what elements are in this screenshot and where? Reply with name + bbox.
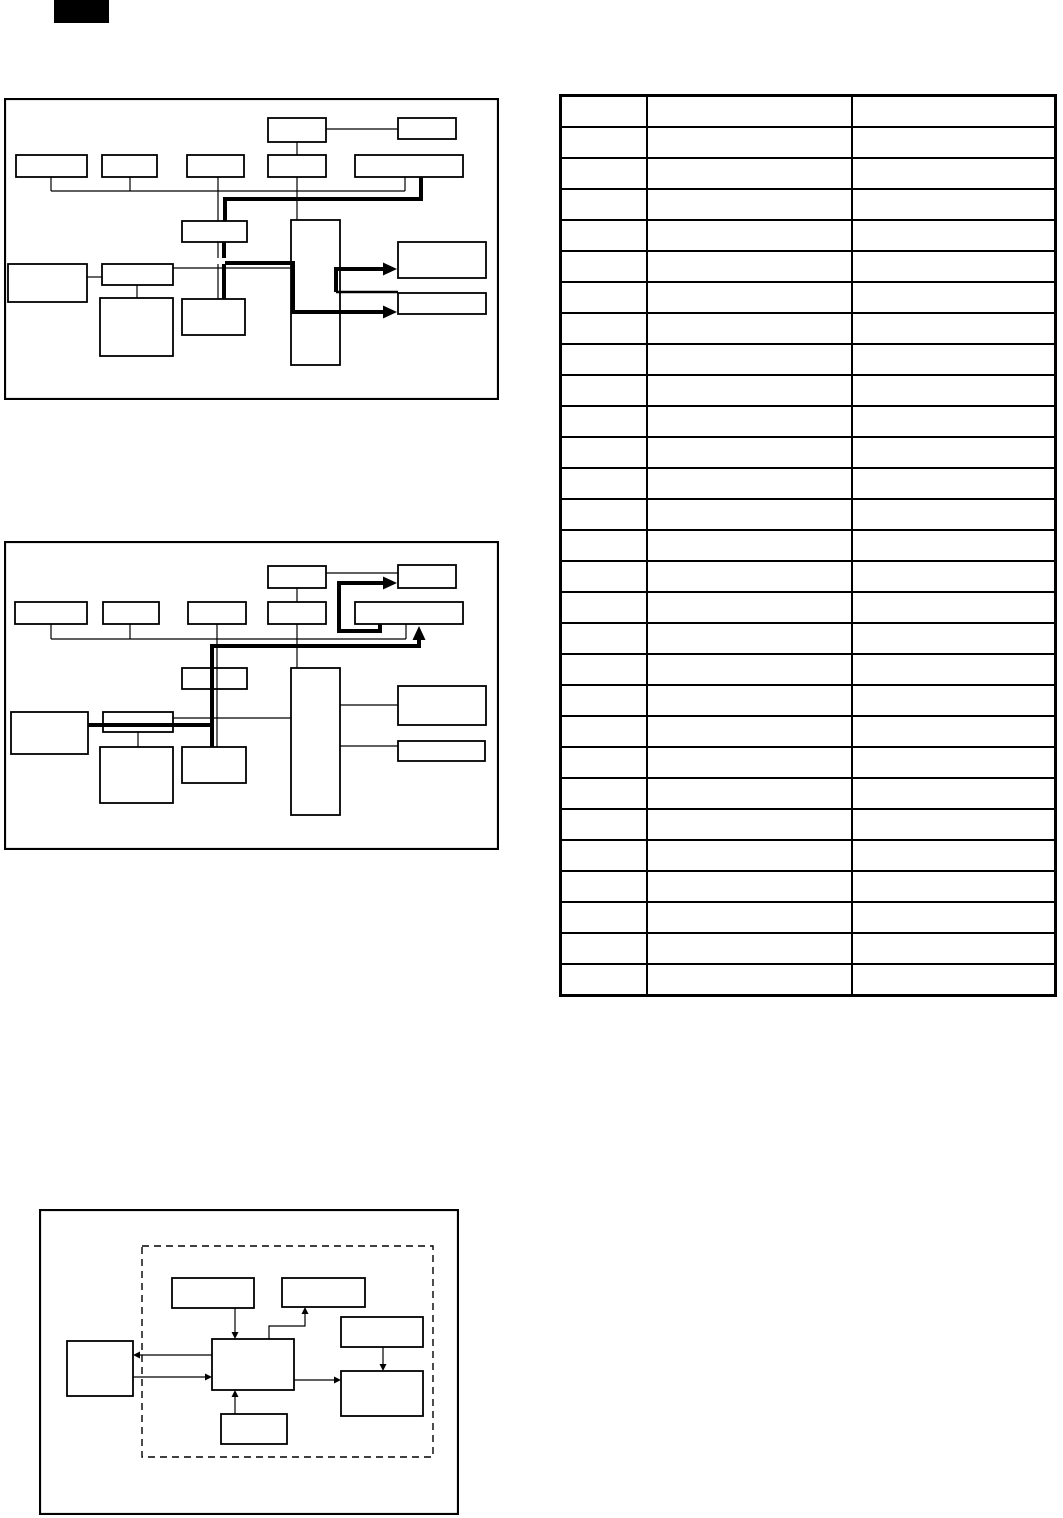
d3-arrow-left-to-center — [133, 1374, 212, 1381]
table-cell — [853, 97, 1054, 126]
table-cell — [648, 562, 853, 591]
block-diagram-3 — [39, 1209, 459, 1515]
table-cell — [648, 469, 853, 498]
table-cell — [648, 903, 853, 932]
d3-right-lower-box — [341, 1371, 423, 1416]
table-row — [562, 157, 1054, 188]
d3-top-right-box — [282, 1278, 365, 1307]
d1-output-arrow-upper — [336, 263, 398, 293]
d3-bottom-box — [221, 1414, 287, 1444]
d2-small-center-box — [182, 668, 247, 689]
table-row — [562, 343, 1054, 374]
table-cell — [853, 748, 1054, 777]
table-row — [562, 219, 1054, 250]
table-cell — [648, 872, 853, 901]
table-row — [562, 281, 1054, 312]
table-cell — [562, 748, 648, 777]
table-cell — [853, 903, 1054, 932]
d2-top-right-box — [398, 565, 456, 588]
table-row — [562, 188, 1054, 219]
d3-left-outside-box — [67, 1341, 133, 1396]
table-cell — [648, 314, 853, 343]
table-cell — [853, 531, 1054, 560]
d2-left-box — [11, 712, 88, 754]
table-cell — [562, 159, 648, 188]
d1-row-box-4 — [268, 155, 326, 177]
d1-tall-center-box — [291, 220, 340, 365]
d3-arrow-right-upper-to-lower — [380, 1347, 387, 1371]
table-row — [562, 901, 1054, 932]
table-cell — [853, 314, 1054, 343]
d1-mid-left-box — [102, 264, 173, 285]
table-cell — [648, 655, 853, 684]
d1-top-right-box — [398, 118, 456, 139]
table-row — [562, 591, 1054, 622]
table-cell — [853, 252, 1054, 281]
table-cell — [853, 407, 1054, 436]
table-row — [562, 405, 1054, 436]
block-diagram-1 — [4, 98, 499, 400]
table-cell — [648, 810, 853, 839]
table-cell — [562, 376, 648, 405]
table-row — [562, 963, 1054, 994]
table-cell — [853, 717, 1054, 746]
table-cell — [562, 128, 648, 157]
table-cell — [562, 624, 648, 653]
table-cell — [562, 934, 648, 963]
table-row — [562, 498, 1054, 529]
table-cell — [853, 934, 1054, 963]
d2-right-upper-box — [398, 686, 486, 725]
table-cell — [562, 779, 648, 808]
table-cell — [562, 283, 648, 312]
d1-right-upper-box — [398, 242, 486, 278]
table-cell — [648, 779, 853, 808]
table-cell — [853, 841, 1054, 870]
table-row — [562, 436, 1054, 467]
table-cell — [853, 872, 1054, 901]
table-cell — [562, 221, 648, 250]
d1-left-box — [8, 264, 87, 302]
table-cell — [562, 717, 648, 746]
table-cell — [648, 531, 853, 560]
table-cell — [648, 624, 853, 653]
d1-bottom-left-box — [100, 298, 173, 356]
table-cell — [562, 531, 648, 560]
d1-small-center-box — [182, 221, 247, 242]
table-cell — [853, 810, 1054, 839]
d3-top-left-box — [172, 1278, 254, 1308]
table-cell — [648, 97, 853, 126]
d2-bottom-mid-box — [182, 747, 246, 783]
d1-bottom-mid-box — [182, 299, 245, 335]
table-cell — [562, 469, 648, 498]
table-cell — [648, 500, 853, 529]
table-row — [562, 467, 1054, 498]
d3-arrow-bottom-to-center — [232, 1390, 239, 1414]
d2-mid-left-box — [103, 712, 173, 732]
d3-center-box — [212, 1339, 294, 1390]
page-corner-tab — [54, 0, 109, 23]
table-cell — [853, 345, 1054, 374]
table-row — [562, 97, 1054, 126]
table-cell — [853, 283, 1054, 312]
d3-arrow-center-to-left — [133, 1352, 212, 1359]
table-row — [562, 250, 1054, 281]
d1-top-box — [268, 118, 326, 142]
table-cell — [648, 221, 853, 250]
d3-arrow-center-to-top-right — [269, 1307, 309, 1339]
table-cell — [853, 190, 1054, 219]
table-cell — [562, 252, 648, 281]
table-cell — [853, 469, 1054, 498]
table-cell — [648, 190, 853, 219]
table-cell — [562, 500, 648, 529]
d2-row-box-4 — [268, 602, 326, 624]
table-cell — [853, 438, 1054, 467]
table-cell — [648, 934, 853, 963]
table-cell — [648, 159, 853, 188]
table-cell — [853, 593, 1054, 622]
table-row — [562, 932, 1054, 963]
table-cell — [648, 593, 853, 622]
d2-top-box — [268, 566, 326, 588]
table-cell — [853, 655, 1054, 684]
table-cell — [853, 376, 1054, 405]
table-row — [562, 374, 1054, 405]
table-cell — [648, 686, 853, 715]
table-cell — [562, 562, 648, 591]
table-cell — [648, 376, 853, 405]
table-cell — [853, 221, 1054, 250]
d3-right-upper-box — [341, 1317, 423, 1347]
table-cell — [562, 593, 648, 622]
d1-row-box-2 — [102, 155, 157, 177]
table-cell — [853, 624, 1054, 653]
table-cell — [853, 159, 1054, 188]
d1-right-lower-box — [398, 293, 486, 314]
table-row — [562, 808, 1054, 839]
table-row — [562, 777, 1054, 808]
table-cell — [562, 841, 648, 870]
table-cell — [648, 438, 853, 467]
table-cell — [562, 314, 648, 343]
table-row — [562, 312, 1054, 343]
table-cell — [648, 128, 853, 157]
table-cell — [648, 717, 853, 746]
table-cell — [562, 903, 648, 932]
table-row — [562, 126, 1054, 157]
d1-row-box-1 — [16, 155, 87, 177]
table-row — [562, 684, 1054, 715]
document-page — [0, 0, 1063, 1518]
block-diagram-2 — [4, 541, 499, 850]
d1-thick-path-bus-to-center — [225, 177, 421, 221]
table-cell — [648, 252, 853, 281]
table-row — [562, 622, 1054, 653]
table-cell — [648, 407, 853, 436]
d2-bottom-left-box — [100, 747, 173, 803]
table-cell — [562, 407, 648, 436]
d3-arrow-center-to-right-lower — [294, 1377, 341, 1384]
table-cell — [562, 345, 648, 374]
table-row — [562, 560, 1054, 591]
table-cell — [562, 965, 648, 994]
table-row — [562, 870, 1054, 901]
table-cell — [562, 190, 648, 219]
d1-row-box-3 — [187, 155, 244, 177]
table-cell — [853, 128, 1054, 157]
table-row — [562, 746, 1054, 777]
d2-row-box-3 — [188, 602, 246, 624]
d1-row-box-5 — [355, 155, 463, 177]
table-row — [562, 715, 1054, 746]
ic-table — [559, 94, 1057, 997]
table-cell — [648, 965, 853, 994]
table-cell — [562, 686, 648, 715]
table-cell — [562, 872, 648, 901]
d2-row-box-1 — [15, 602, 87, 624]
table-cell — [853, 500, 1054, 529]
table-cell — [562, 810, 648, 839]
table-cell — [853, 965, 1054, 994]
d2-right-lower-box — [398, 741, 485, 761]
table-cell — [562, 655, 648, 684]
d2-tall-center-box — [291, 668, 340, 815]
d3-arrow-top-to-center — [232, 1308, 239, 1339]
table-cell — [853, 686, 1054, 715]
d2-row-box-5 — [355, 602, 463, 624]
table-cell — [648, 345, 853, 374]
table-cell — [853, 779, 1054, 808]
table-row — [562, 529, 1054, 560]
table-cell — [562, 97, 648, 126]
table-cell — [648, 283, 853, 312]
table-row — [562, 653, 1054, 684]
table-cell — [648, 841, 853, 870]
table-cell — [648, 748, 853, 777]
table-cell — [853, 562, 1054, 591]
table-row — [562, 839, 1054, 870]
table-cell — [562, 438, 648, 467]
d2-row-box-2 — [103, 602, 159, 624]
